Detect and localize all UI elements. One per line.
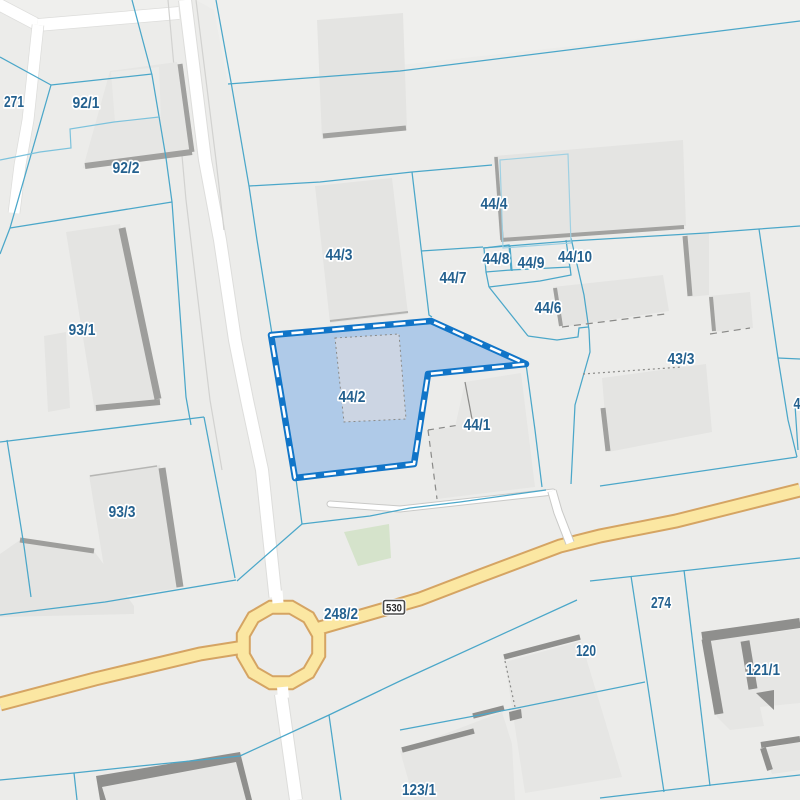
svg-text:44/4: 44/4 [481,196,508,213]
svg-text:44/1: 44/1 [464,417,491,434]
svg-text:123/1: 123/1 [402,782,436,799]
svg-text:120: 120 [576,643,596,660]
svg-text:93/1: 93/1 [69,322,96,339]
svg-text:530: 530 [386,603,402,615]
svg-text:44/7: 44/7 [440,270,467,287]
svg-text:44/2: 44/2 [339,389,366,406]
svg-text:271: 271 [4,94,24,111]
svg-text:93/3: 93/3 [109,504,136,521]
svg-text:44/8: 44/8 [483,251,510,268]
svg-text:44/9: 44/9 [518,255,545,272]
svg-text:92/2: 92/2 [113,160,140,177]
svg-text:248/2: 248/2 [324,606,358,623]
svg-text:92/1: 92/1 [73,95,100,112]
svg-text:44/10: 44/10 [558,249,592,266]
svg-text:43/3: 43/3 [668,351,695,368]
svg-text:44/3: 44/3 [326,247,353,264]
svg-text:121/1: 121/1 [746,662,780,679]
svg-text:4: 4 [794,396,800,413]
svg-text:44/6: 44/6 [535,300,562,317]
svg-text:274: 274 [651,595,671,612]
